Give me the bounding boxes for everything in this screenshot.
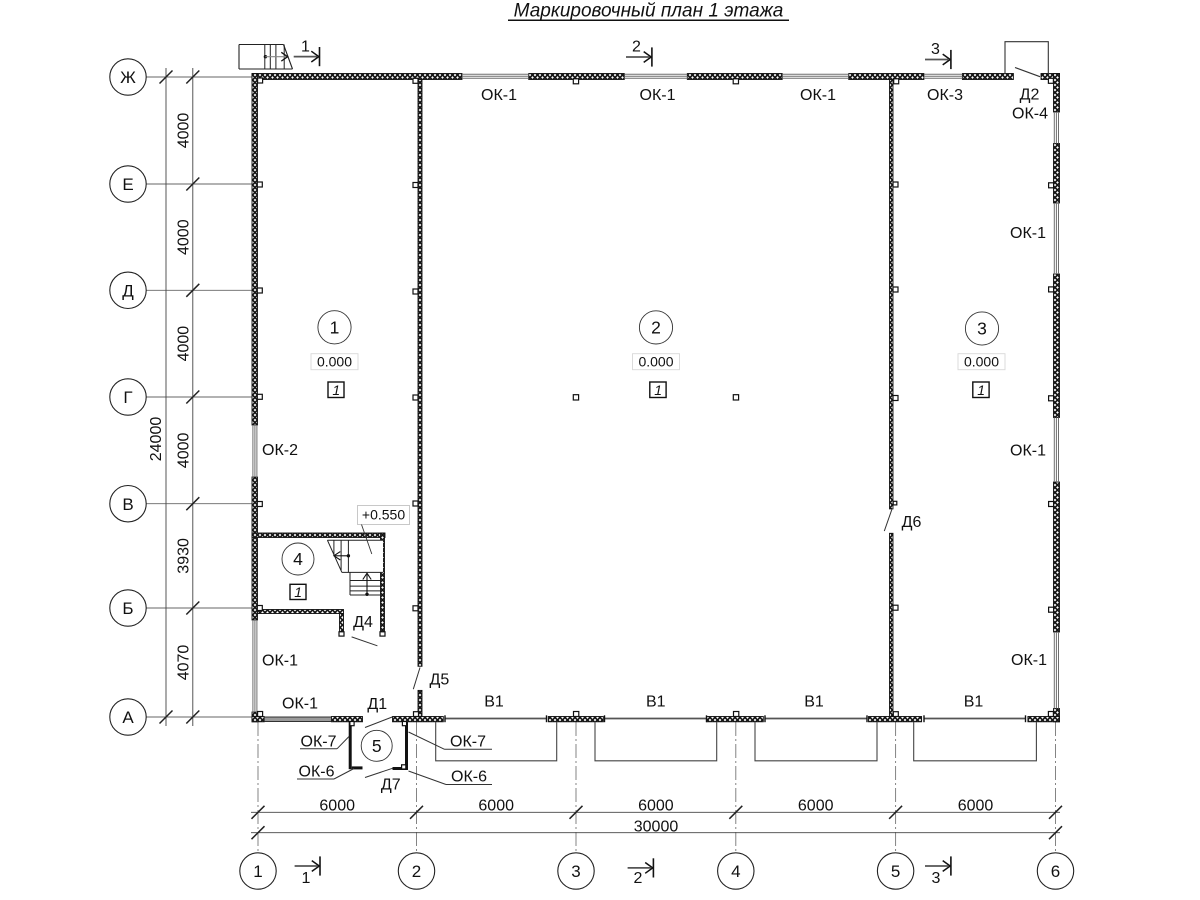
svg-text:6000: 6000	[958, 798, 994, 815]
svg-text:5: 5	[372, 736, 382, 756]
svg-text:1: 1	[332, 382, 340, 398]
svg-text:ОК-3: ОК-3	[927, 87, 963, 104]
svg-text:0.000: 0.000	[638, 353, 673, 369]
svg-text:1: 1	[301, 39, 310, 56]
svg-text:6000: 6000	[478, 798, 514, 815]
svg-text:0.000: 0.000	[317, 353, 352, 369]
svg-text:А: А	[122, 708, 134, 727]
svg-text:Д4: Д4	[353, 614, 373, 631]
svg-text:4: 4	[731, 862, 740, 881]
svg-text:1: 1	[977, 382, 985, 398]
svg-text:4000: 4000	[176, 433, 193, 469]
svg-text:В1: В1	[964, 694, 984, 711]
svg-text:ОК-6: ОК-6	[451, 769, 487, 786]
svg-text:ОК-1: ОК-1	[481, 87, 517, 104]
svg-text:Д2: Д2	[1020, 87, 1040, 104]
svg-text:Д7: Д7	[381, 777, 401, 794]
svg-text:В1: В1	[804, 694, 824, 711]
svg-text:ОК-1: ОК-1	[262, 653, 298, 670]
svg-text:3: 3	[931, 41, 940, 58]
svg-text:В1: В1	[646, 694, 666, 711]
svg-text:Маркировочный план 1 этажа: Маркировочный план 1 этажа	[514, 1, 784, 22]
svg-text:2: 2	[632, 39, 641, 56]
svg-text:0.000: 0.000	[964, 353, 999, 369]
svg-text:ОК-2: ОК-2	[262, 442, 298, 459]
svg-text:В1: В1	[484, 694, 504, 711]
svg-text:ОК-7: ОК-7	[301, 734, 337, 751]
svg-text:6000: 6000	[798, 798, 834, 815]
svg-text:+0.550: +0.550	[362, 506, 405, 522]
svg-text:ОК-1: ОК-1	[640, 87, 676, 104]
svg-text:ОК-1: ОК-1	[1011, 652, 1047, 669]
svg-text:2: 2	[651, 318, 661, 338]
svg-text:Д6: Д6	[902, 514, 922, 531]
svg-text:Б: Б	[122, 599, 133, 618]
svg-text:Ж: Ж	[120, 68, 136, 87]
svg-text:4: 4	[293, 549, 303, 569]
svg-text:В: В	[122, 495, 133, 514]
svg-text:Г: Г	[123, 388, 132, 407]
svg-text:Д5: Д5	[430, 671, 450, 688]
svg-text:1: 1	[654, 382, 662, 398]
svg-text:Д1: Д1	[367, 696, 387, 713]
svg-text:6000: 6000	[319, 798, 355, 815]
svg-text:Д: Д	[122, 282, 134, 301]
svg-text:2: 2	[412, 862, 421, 881]
svg-text:5: 5	[891, 862, 900, 881]
svg-text:ОК-1: ОК-1	[800, 87, 836, 104]
svg-text:4070: 4070	[176, 645, 193, 681]
svg-text:1: 1	[302, 870, 311, 887]
svg-text:ОК-6: ОК-6	[299, 764, 335, 781]
svg-text:4000: 4000	[176, 219, 193, 255]
svg-text:ОК-1: ОК-1	[1010, 225, 1046, 242]
svg-text:ОК-1: ОК-1	[282, 696, 318, 713]
svg-text:ОК-4: ОК-4	[1012, 106, 1048, 123]
svg-text:ОК-1: ОК-1	[1010, 443, 1046, 460]
svg-text:2: 2	[634, 870, 643, 887]
svg-text:6000: 6000	[638, 798, 674, 815]
svg-text:ОК-7: ОК-7	[450, 734, 486, 751]
svg-text:1: 1	[294, 584, 302, 600]
svg-text:1: 1	[253, 862, 262, 881]
svg-text:3930: 3930	[176, 538, 193, 574]
svg-text:24000: 24000	[148, 417, 165, 462]
svg-text:3: 3	[977, 319, 987, 339]
svg-text:3: 3	[932, 870, 941, 887]
svg-text:Е: Е	[122, 175, 133, 194]
svg-text:3: 3	[571, 862, 580, 881]
svg-text:1: 1	[330, 318, 340, 338]
svg-text:6: 6	[1051, 862, 1060, 881]
svg-text:4000: 4000	[176, 113, 193, 149]
svg-text:4000: 4000	[176, 326, 193, 362]
svg-text:30000: 30000	[634, 818, 679, 835]
